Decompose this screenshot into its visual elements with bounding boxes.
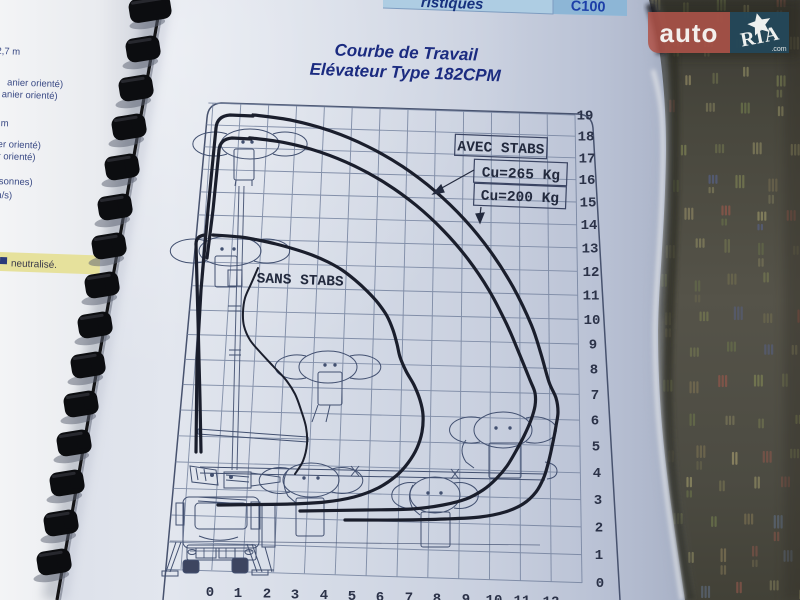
svg-text:0: 0: [206, 585, 214, 600]
svg-text:neutralisé.: neutralisé.: [11, 258, 57, 271]
svg-text:er orienté): er orienté): [0, 139, 41, 152]
svg-text:AVEC STABS: AVEC STABS: [457, 139, 545, 158]
svg-text:15: 15: [580, 196, 597, 212]
svg-text:12: 12: [583, 265, 600, 281]
svg-text:17: 17: [579, 151, 596, 167]
svg-text:7: 7: [405, 591, 413, 600]
svg-text:8: 8: [590, 363, 598, 379]
svg-text:10: 10: [584, 313, 601, 329]
svg-text:1: 1: [595, 548, 603, 564]
svg-text:ersonnes): ersonnes): [0, 176, 33, 188]
svg-text:16: 16: [579, 173, 596, 189]
svg-text:r orienté): r orienté): [0, 151, 36, 163]
svg-text:2,7 m: 2,7 m: [0, 46, 20, 58]
svg-text:5: 5: [348, 589, 356, 600]
svg-text:10: 10: [486, 593, 503, 600]
svg-text:.com: .com: [771, 46, 786, 53]
svg-text:anier orienté): anier orienté): [7, 77, 63, 90]
svg-text:18: 18: [578, 130, 595, 146]
svg-text:14: 14: [581, 218, 598, 234]
svg-text:3: 3: [594, 493, 602, 509]
svg-text:0: 0: [596, 576, 604, 592]
svg-text:2: 2: [595, 520, 603, 536]
svg-text:11: 11: [514, 594, 531, 600]
svg-text:6: 6: [376, 590, 384, 600]
svg-text:6: 6: [591, 414, 599, 430]
svg-text:Cu=265 Kg: Cu=265 Kg: [481, 166, 560, 185]
svg-text:3: 3: [291, 587, 299, 600]
svg-text:9: 9: [462, 592, 470, 600]
svg-text:auto: auto: [660, 18, 719, 48]
svg-text:anier orienté): anier orienté): [2, 89, 58, 102]
svg-text:4: 4: [320, 588, 328, 600]
svg-text:2: 2: [263, 587, 271, 600]
svg-text:m: m: [1, 118, 9, 129]
svg-text:SANS STABS: SANS STABS: [256, 271, 344, 290]
svg-text:7: 7: [591, 388, 599, 404]
svg-text:19: 19: [577, 109, 594, 125]
svg-text:5: 5: [592, 440, 600, 456]
svg-text:13: 13: [582, 241, 599, 257]
svg-text:11: 11: [583, 289, 600, 305]
svg-text:Cu=200 Kg: Cu=200 Kg: [480, 189, 559, 208]
svg-text:12: 12: [543, 595, 560, 600]
svg-text:8: 8: [433, 591, 441, 600]
svg-text:C100: C100: [571, 0, 606, 16]
svg-text:ristiques: ristiques: [421, 0, 484, 13]
svg-text:9: 9: [589, 338, 597, 354]
svg-text:4: 4: [593, 466, 601, 482]
svg-text:n/s): n/s): [0, 190, 12, 202]
svg-text:1: 1: [234, 586, 242, 600]
